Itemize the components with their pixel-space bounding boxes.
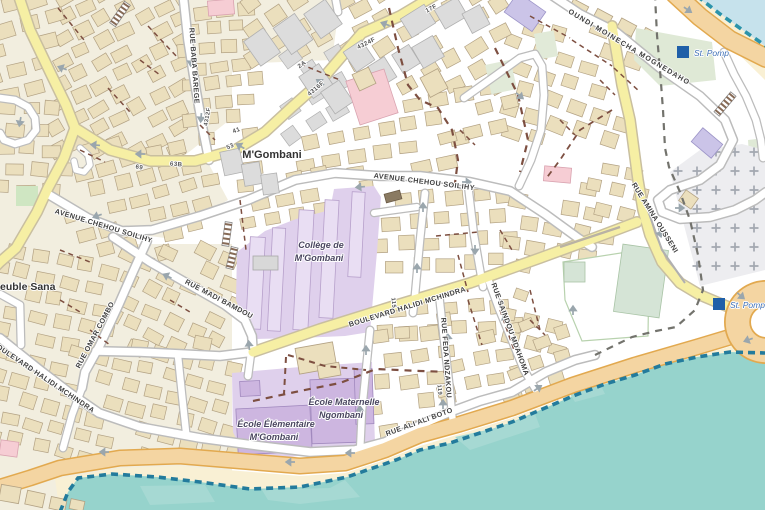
svg-text:M'Gombani: M'Gombani	[242, 149, 301, 161]
svg-text:M'Gombani: M'Gombani	[295, 253, 344, 263]
svg-text:115: 115	[390, 297, 397, 308]
svg-text:Ngombani: Ngombani	[319, 410, 363, 420]
svg-text:M'Gombani: M'Gombani	[250, 432, 299, 442]
svg-text:euble Sana: euble Sana	[0, 281, 56, 293]
svg-text:St. Pomp: St. Pomp	[694, 48, 729, 58]
svg-text:69: 69	[135, 163, 144, 171]
svg-text:119: 119	[436, 384, 443, 395]
svg-text:Collège de: Collège de	[298, 240, 344, 250]
svg-text:63B: 63B	[170, 160, 183, 168]
svg-text:École Maternelle: École Maternelle	[308, 397, 379, 407]
svg-text:St. Pomp: St. Pomp	[730, 300, 765, 310]
svg-text:École Élémentaire: École Élémentaire	[237, 419, 315, 429]
